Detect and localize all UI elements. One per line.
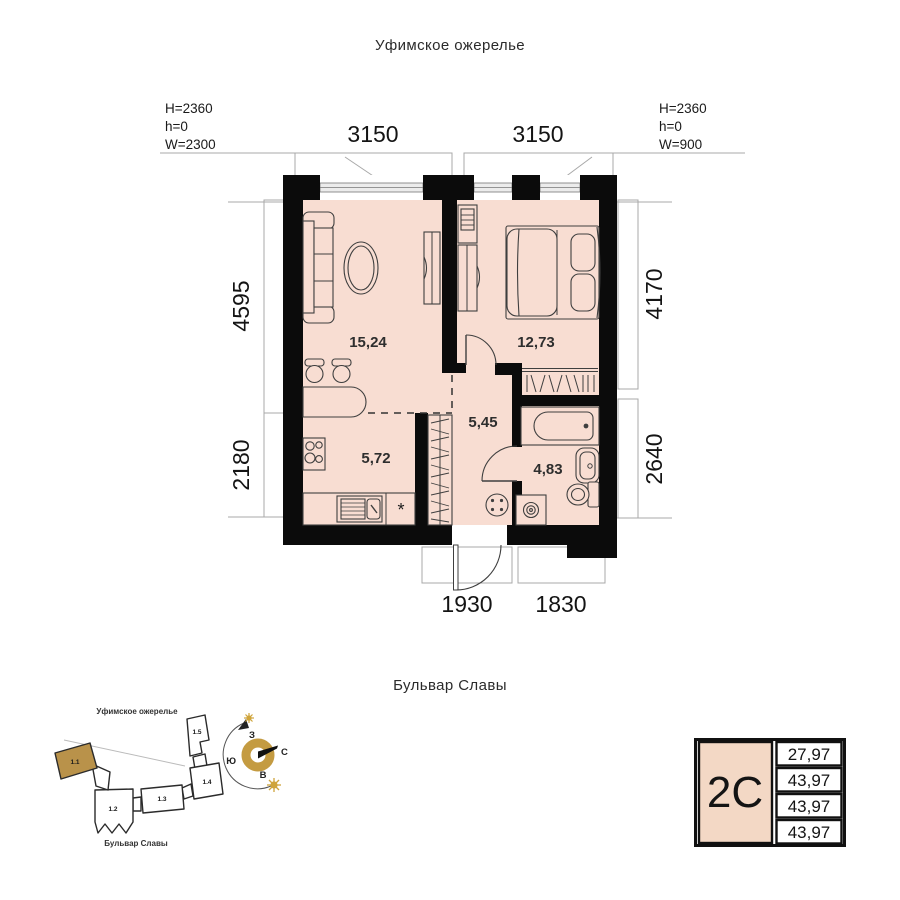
dim-bottom-2: 1830 xyxy=(535,591,586,617)
bedroom-area-label: 12,73 xyxy=(517,334,555,351)
washing-machine xyxy=(516,495,546,525)
hall-stool xyxy=(486,494,508,516)
svg-text:H=2360: H=2360 xyxy=(165,101,213,116)
wall-kitchen-hall xyxy=(415,413,428,525)
dim-top-1: 3150 xyxy=(347,121,398,147)
dim-left-1: 4595 xyxy=(228,280,254,331)
pillow xyxy=(571,234,595,271)
hallway-area-label: 5,45 xyxy=(468,414,497,431)
compass-north: С xyxy=(281,747,288,758)
building-1-1-label: 1.1 xyxy=(70,759,79,766)
double-bed xyxy=(506,226,600,319)
dim-bottom-1: 1930 xyxy=(441,591,492,617)
sun-icon-large xyxy=(267,778,281,792)
building-1-2-label: 1.2 xyxy=(108,806,117,813)
building-1-4-label: 1.4 xyxy=(202,779,211,786)
compass-south: Ю xyxy=(226,756,236,767)
bathroom-area-label: 4,83 xyxy=(533,461,562,478)
dim-left-2: 2180 xyxy=(228,439,254,490)
kitchen-area-label: 5,72 xyxy=(361,450,390,467)
compass-east: В xyxy=(260,770,267,781)
svg-text:W=2300: W=2300 xyxy=(165,137,216,152)
svg-text:W=900: W=900 xyxy=(659,137,702,152)
compass-west: З xyxy=(249,730,255,741)
svg-text:h=0: h=0 xyxy=(659,119,682,134)
info-value-1: 27,97 xyxy=(788,745,831,764)
building-1-3-label: 1.3 xyxy=(157,796,166,803)
dim-top-2: 3150 xyxy=(512,121,563,147)
dim-right-2: 2640 xyxy=(641,433,667,484)
fridge-asterisk-symbol: * xyxy=(397,500,404,520)
minimap-district-label: Уфимское ожерелье xyxy=(96,707,178,716)
kitchen-sink xyxy=(337,496,382,522)
info-value-3: 43,97 xyxy=(788,797,831,816)
compass: З С Ю В xyxy=(223,713,288,792)
floorplan-canvas: Уфимское ожерелье Бульвар Славы H=2360 h… xyxy=(0,0,900,900)
building-1-5-label: 1.5 xyxy=(192,729,201,736)
living-room-area-label: 15,24 xyxy=(349,334,387,351)
bar-counter xyxy=(303,387,366,417)
apartment-info-table: 2С 27,97 43,97 43,97 43,97 xyxy=(696,740,845,846)
wall-living-bedroom xyxy=(442,200,457,363)
window-spec-left: H=2360 h=0 W=2300 xyxy=(165,101,216,152)
window-spec-right: H=2360 h=0 W=900 xyxy=(659,101,707,152)
minimap-street-label: Бульвар Славы xyxy=(104,839,168,848)
dim-right-1: 4170 xyxy=(641,268,667,319)
pillow xyxy=(571,274,595,311)
svg-text:H=2360: H=2360 xyxy=(659,101,707,116)
wall-bedroom-bathroom xyxy=(512,395,617,406)
floorplan-page: Уфимское ожерелье Бульвар Славы H=2360 h… xyxy=(0,0,900,900)
street-label-top: Уфимское ожерелье xyxy=(375,37,525,54)
hall-closet xyxy=(428,415,452,525)
sun-icon-small xyxy=(244,713,254,723)
street-label-bottom: Бульвар Славы xyxy=(393,677,507,694)
coffee-table xyxy=(344,242,378,294)
sun-path-arrow xyxy=(238,719,249,730)
svg-text:h=0: h=0 xyxy=(165,119,188,134)
connector xyxy=(133,797,141,811)
site-plan-minimap: Уфимское ожерелье 1.1 1.2 1.3 1.4 1.5 Бу… xyxy=(55,707,223,848)
info-value-4: 43,97 xyxy=(788,823,831,842)
info-value-2: 43,97 xyxy=(788,771,831,790)
toilet xyxy=(567,482,599,507)
apartment-type-label: 2С xyxy=(707,768,763,817)
